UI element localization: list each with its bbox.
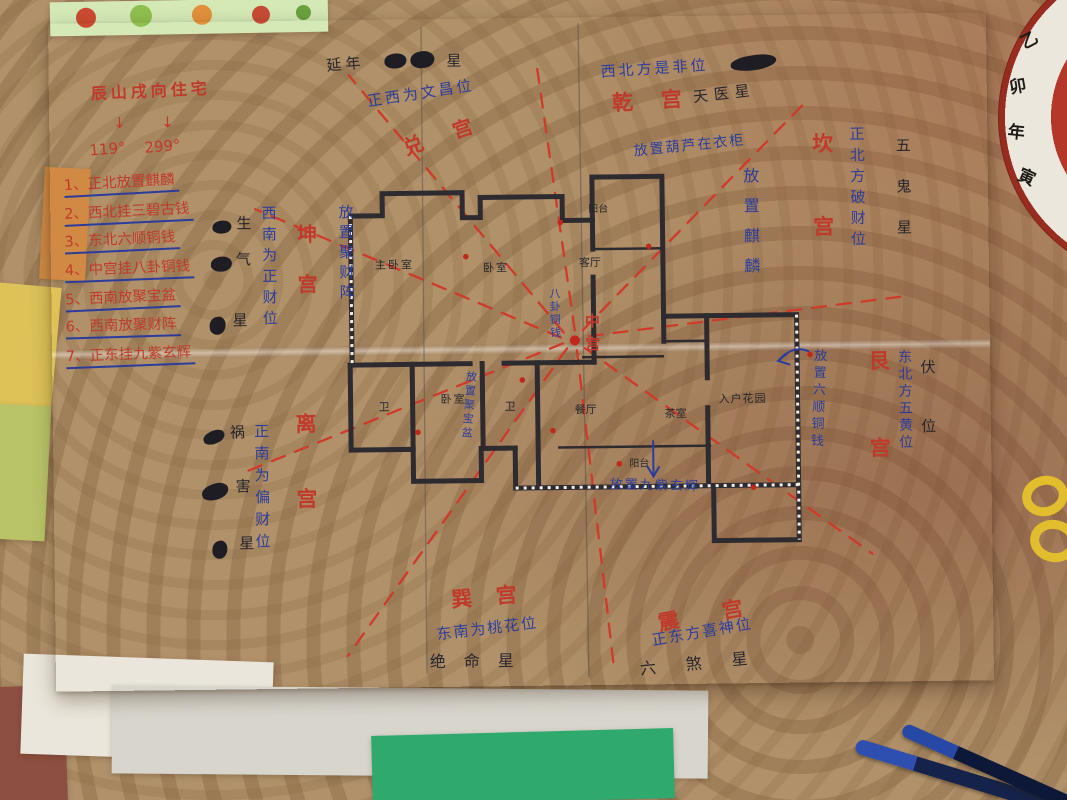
- checklist-item: 1、正北放置麒麟: [63, 172, 179, 198]
- compass-ring-char: 年: [1007, 117, 1027, 144]
- room-bath-mid: 卫: [505, 401, 516, 414]
- room-balcony-top: 阳台: [588, 204, 608, 216]
- note-north-pocai: 正北方破财位: [847, 126, 866, 252]
- checklist-item: 3、东北六顺铜钱: [64, 230, 180, 255]
- down-arrow-icon: ↓: [161, 114, 174, 131]
- checklist-item: 6、西南放聚财阵: [65, 317, 180, 340]
- star-char-sheng: 生: [236, 215, 251, 232]
- star-char-qi: 气: [236, 251, 251, 268]
- star-char-xing: 星: [232, 312, 247, 329]
- star-char-hai: 害: [236, 478, 251, 495]
- palace-li: 离宫: [293, 412, 319, 562]
- placement-jiuzi: 放置九紫玄辉: [609, 478, 699, 495]
- palace-kan: 坎宫: [809, 132, 835, 298]
- star-char-xing2: 星: [239, 535, 254, 552]
- compass-ring-char: 卯: [1007, 71, 1028, 99]
- star-char-huo: 祸: [230, 424, 245, 441]
- olive-paper-edge: [0, 404, 51, 542]
- fengshui-worksheet: 辰山戌向住宅 ↓ ↓ 119° 299° 1、正北放置麒麟 2、西北挂三碧古钱 …: [48, 12, 994, 691]
- palace-kun: 坤宫: [293, 223, 317, 323]
- palace-gen: 艮宫: [866, 349, 892, 523]
- leaf-illustration: [296, 5, 311, 20]
- photo-of-fengshui-floorplan: 乙 卯 年 寅: [0, 0, 1067, 800]
- compass-ring-char: 乙: [1015, 23, 1042, 53]
- room-bedroom-top: 卧室: [483, 262, 509, 275]
- checklist-item: 7、正东挂九紫玄辉: [66, 344, 196, 369]
- compass-ring-char: 寅: [1015, 161, 1041, 191]
- star-name-fuwei: 伏位: [918, 359, 937, 477]
- down-arrow-icon: ↓: [113, 115, 126, 132]
- checklist-item: 2、西北挂三碧古钱: [64, 200, 194, 226]
- green-paper-edge: [371, 728, 675, 800]
- room-master-bedroom: 主卧室: [375, 259, 414, 272]
- star-name-wugui: 五鬼星: [893, 137, 912, 260]
- room-dining-room: 餐厅: [575, 404, 597, 417]
- placement-bagua-coins: 八卦铜钱: [547, 288, 560, 340]
- placement-liushun-coins: 放置六顺铜钱: [807, 348, 826, 451]
- star-name-jueming: 绝命星: [430, 652, 532, 672]
- room-living-room: 客厅: [579, 257, 601, 270]
- room-bedroom-bottom: 卧室: [441, 394, 467, 407]
- placement-qilin: 放置麒麟: [740, 167, 760, 287]
- palace-zhong: 中宫: [583, 313, 601, 359]
- degree-value: 299°: [144, 137, 181, 157]
- note-northeast-wuhuang: 东北方五黄位: [896, 349, 913, 451]
- room-balcony-bottom: 阳台: [629, 458, 649, 470]
- placement-jucaizhen: 放置聚财阵: [336, 204, 354, 304]
- checklist-item: 4、中宫挂八卦铜钱: [65, 258, 195, 283]
- room-bath-left: 卫: [379, 402, 390, 415]
- checklist-item: 5、西南放聚宝盆: [65, 287, 181, 312]
- note-southwest-zhengcai: 西南为正财位: [259, 205, 278, 331]
- degree-value: 119°: [89, 140, 126, 160]
- note-south-piancai: 正南为偏财位: [252, 423, 271, 555]
- remedy-checklist: 1、正北放置麒麟 2、西北挂三碧古钱 3、东北六顺铜钱 4、中宫挂八卦铜钱 5、…: [64, 174, 196, 376]
- room-tea-room: 茶室: [665, 408, 687, 421]
- star-name-yannian: 延年: [326, 55, 365, 75]
- room-entry-garden: 入户花园: [719, 393, 767, 406]
- star-name-suffix: 星: [446, 53, 461, 70]
